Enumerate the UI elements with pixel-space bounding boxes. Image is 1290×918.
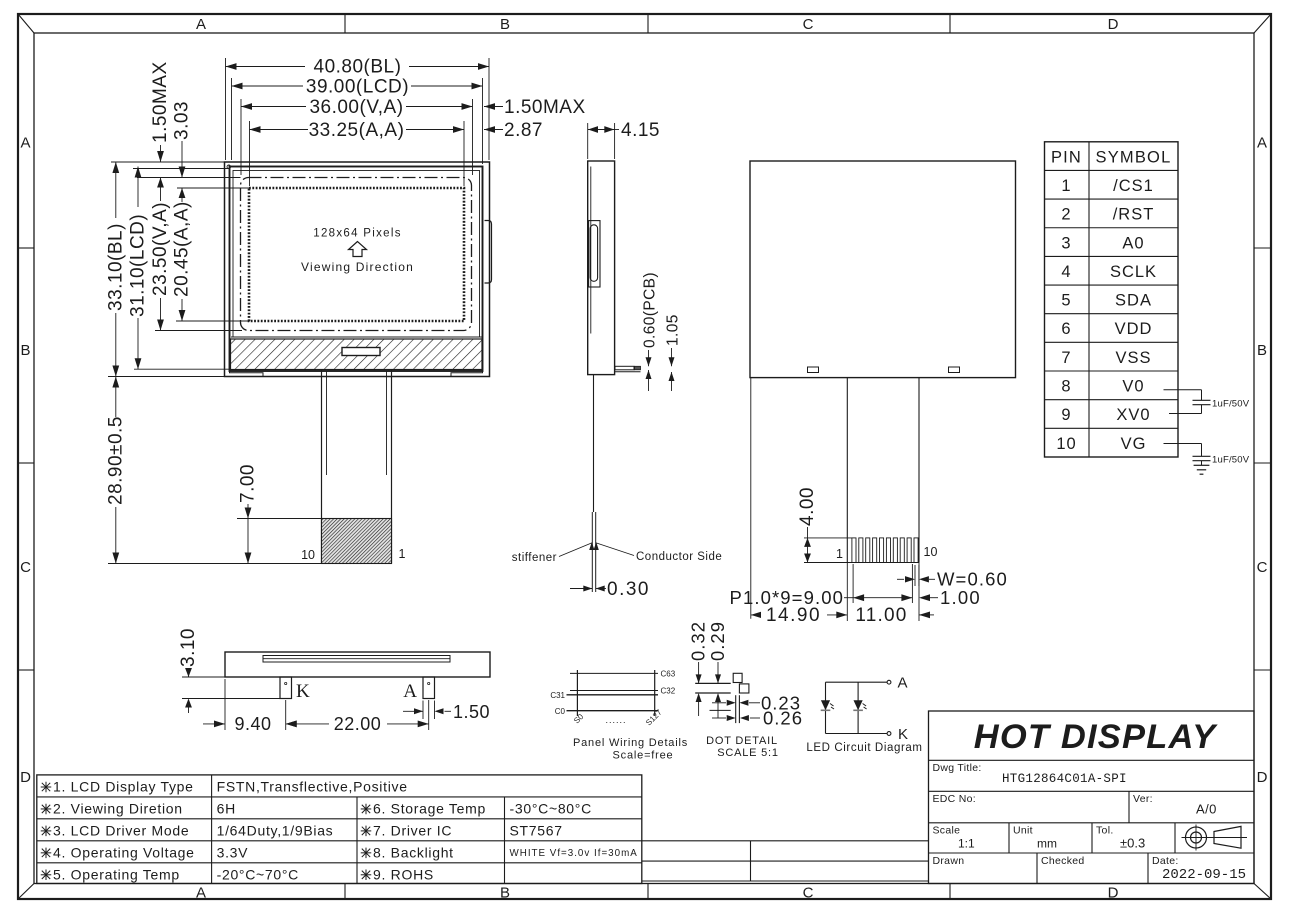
svg-text:39.00(LCD): 39.00(LCD): [306, 77, 409, 98]
svg-text:1. LCD Display Type: 1. LCD Display Type: [53, 779, 194, 795]
svg-text:0.26: 0.26: [763, 708, 803, 729]
svg-text:C0: C0: [555, 707, 566, 716]
svg-text:K: K: [898, 726, 908, 743]
svg-text:C32: C32: [661, 687, 676, 696]
svg-text:ST7567: ST7567: [510, 822, 563, 838]
svg-text:A: A: [196, 885, 206, 902]
svg-text:HOT DISPLAY: HOT DISPLAY: [974, 718, 1218, 756]
svg-text:SCALE 5:1: SCALE 5:1: [717, 747, 779, 759]
svg-text:A: A: [898, 675, 908, 692]
svg-text:Scale: Scale: [933, 825, 961, 837]
svg-text:/CS1: /CS1: [1113, 177, 1154, 195]
svg-text:1.50MAX: 1.50MAX: [504, 97, 586, 118]
svg-text:10: 10: [301, 548, 315, 562]
svg-text:SYMBOL: SYMBOL: [1096, 148, 1172, 166]
svg-text:1uF/50V: 1uF/50V: [1212, 455, 1250, 466]
svg-text:9: 9: [1061, 406, 1071, 424]
svg-text:7.00: 7.00: [238, 464, 259, 503]
svg-text:7: 7: [1061, 349, 1071, 367]
svg-text:FSTN,Transflective,Positive: FSTN,Transflective,Positive: [217, 779, 408, 795]
svg-text:C: C: [20, 559, 31, 576]
svg-text:B: B: [1257, 342, 1267, 359]
svg-text:1.50MAX: 1.50MAX: [150, 61, 171, 143]
svg-text:6H: 6H: [217, 800, 236, 816]
svg-text:6. Storage Temp: 6. Storage Temp: [373, 800, 486, 816]
svg-text:SCLK: SCLK: [1110, 263, 1157, 281]
svg-text:1uF/50V: 1uF/50V: [1212, 399, 1250, 410]
svg-text:Ver:: Ver:: [1133, 793, 1153, 805]
svg-text:A0: A0: [1122, 234, 1144, 252]
svg-text:C31: C31: [550, 691, 565, 700]
svg-text:D: D: [1108, 885, 1119, 902]
svg-text:LED Circuit Diagram: LED Circuit Diagram: [806, 742, 922, 754]
svg-text:VSS: VSS: [1115, 349, 1151, 367]
svg-text:B: B: [500, 885, 510, 902]
svg-text:1: 1: [399, 547, 406, 561]
svg-text:Conductor Side: Conductor Side: [636, 551, 722, 563]
svg-text:40.80(BL): 40.80(BL): [314, 57, 402, 78]
svg-text:2022-09-15: 2022-09-15: [1162, 867, 1246, 883]
svg-text:1.05: 1.05: [665, 314, 682, 346]
svg-text:28.90±0.5: 28.90±0.5: [106, 416, 127, 505]
svg-text:B: B: [20, 342, 30, 359]
svg-text:XV0: XV0: [1116, 406, 1150, 424]
svg-text:10: 10: [924, 545, 938, 559]
svg-text:Panel Wiring Details: Panel Wiring Details: [573, 737, 688, 749]
svg-text:14.90: 14.90: [766, 605, 821, 626]
svg-text:2.87: 2.87: [504, 120, 543, 141]
svg-text:7. Driver IC: 7. Driver IC: [373, 822, 452, 838]
svg-text:8. Backlight: 8. Backlight: [373, 844, 454, 860]
svg-text:0.30: 0.30: [607, 579, 650, 600]
svg-text:D: D: [1257, 769, 1268, 786]
svg-text:2: 2: [1061, 206, 1071, 224]
svg-text:0.32: 0.32: [688, 621, 709, 661]
svg-text:8: 8: [1061, 378, 1071, 396]
svg-text:33.25(A,A): 33.25(A,A): [309, 120, 405, 141]
svg-text:mm: mm: [1037, 837, 1057, 851]
svg-text:33.10(BL): 33.10(BL): [106, 223, 127, 311]
svg-text:Dwg Title:: Dwg Title:: [933, 762, 982, 774]
svg-text:3.3V: 3.3V: [217, 844, 249, 860]
svg-text:22.00: 22.00: [334, 714, 382, 734]
svg-text:C: C: [803, 16, 814, 33]
svg-text:1/64Duty,1/9Bias: 1/64Duty,1/9Bias: [217, 822, 334, 838]
svg-text:C: C: [1257, 559, 1268, 576]
svg-text:6: 6: [1061, 320, 1071, 338]
svg-text:3.10: 3.10: [178, 628, 199, 667]
svg-text:4: 4: [1061, 263, 1071, 281]
svg-text:HTG12864C01A-SPI: HTG12864C01A-SPI: [1002, 772, 1127, 786]
svg-text:S0: S0: [572, 712, 586, 726]
svg-text:Date:: Date:: [1152, 855, 1179, 867]
svg-text:2. Viewing Diretion: 2. Viewing Diretion: [53, 800, 183, 816]
svg-text:A: A: [403, 681, 417, 702]
svg-text:0.60(PCB): 0.60(PCB): [642, 272, 659, 348]
svg-text:A/0: A/0: [1196, 802, 1217, 817]
svg-text:A: A: [1257, 135, 1267, 152]
svg-text:4.00: 4.00: [797, 487, 818, 526]
svg-text:PIN: PIN: [1051, 148, 1082, 166]
svg-text:5: 5: [1061, 292, 1071, 310]
svg-text:3.03: 3.03: [172, 101, 193, 140]
svg-text:A: A: [196, 16, 206, 33]
svg-text:C63: C63: [661, 670, 676, 679]
svg-text:K: K: [296, 681, 310, 702]
svg-text:0.29: 0.29: [707, 621, 728, 661]
svg-text:9.40: 9.40: [234, 714, 271, 734]
svg-text:1: 1: [1061, 177, 1071, 195]
svg-text:9. ROHS: 9. ROHS: [373, 866, 434, 882]
svg-text:20.45(A,A): 20.45(A,A): [172, 201, 193, 297]
svg-text:23.50(V,A): 23.50(V,A): [150, 202, 171, 296]
svg-text:-30°C~80°C: -30°C~80°C: [510, 800, 592, 816]
svg-text:±0.3: ±0.3: [1120, 836, 1145, 851]
svg-text:4. Operating Voltage: 4. Operating Voltage: [53, 844, 195, 860]
svg-text:3: 3: [1061, 234, 1071, 252]
svg-text:10: 10: [1056, 435, 1076, 453]
svg-text:1.00: 1.00: [940, 587, 981, 608]
svg-text:......: ......: [605, 715, 626, 725]
svg-text:WHITE Vf=3.0v If=30mA: WHITE Vf=3.0v If=30mA: [510, 848, 638, 859]
svg-text:B: B: [500, 16, 510, 33]
svg-text:VDD: VDD: [1115, 320, 1153, 338]
svg-text:A: A: [20, 135, 30, 152]
svg-text:4.15: 4.15: [621, 120, 660, 141]
svg-text:stiffener: stiffener: [512, 552, 557, 564]
svg-text:1:1: 1:1: [958, 837, 975, 851]
svg-text:-20°C~70°C: -20°C~70°C: [217, 866, 299, 882]
svg-text:/RST: /RST: [1113, 206, 1155, 224]
svg-text:Scale=free: Scale=free: [613, 750, 674, 762]
svg-text:31.10(LCD): 31.10(LCD): [128, 214, 149, 317]
svg-text:3. LCD Driver Mode: 3. LCD Driver Mode: [53, 822, 189, 838]
svg-text:Tol.: Tol.: [1096, 825, 1114, 837]
svg-text:VG: VG: [1121, 435, 1147, 453]
svg-text:Checked: Checked: [1041, 855, 1085, 867]
svg-text:128x64 Pixels: 128x64 Pixels: [313, 228, 402, 240]
svg-text:C: C: [803, 885, 814, 902]
svg-text:DOT DETAIL: DOT DETAIL: [706, 735, 778, 747]
svg-text:SDA: SDA: [1115, 292, 1152, 310]
svg-text:36.00(V,A): 36.00(V,A): [309, 97, 403, 118]
svg-text:D: D: [1108, 16, 1119, 33]
svg-text:Drawn: Drawn: [933, 855, 965, 867]
svg-text:1: 1: [836, 547, 843, 561]
svg-text:11.00: 11.00: [855, 605, 907, 626]
svg-text:Unit: Unit: [1013, 825, 1033, 837]
svg-text:Viewing Direction: Viewing Direction: [301, 260, 414, 274]
svg-text:5. Operating Temp: 5. Operating Temp: [53, 866, 180, 882]
svg-text:D: D: [20, 769, 31, 786]
svg-text:V0: V0: [1122, 378, 1144, 396]
svg-text:1.50: 1.50: [453, 702, 490, 722]
svg-text:EDC No:: EDC No:: [933, 793, 977, 805]
